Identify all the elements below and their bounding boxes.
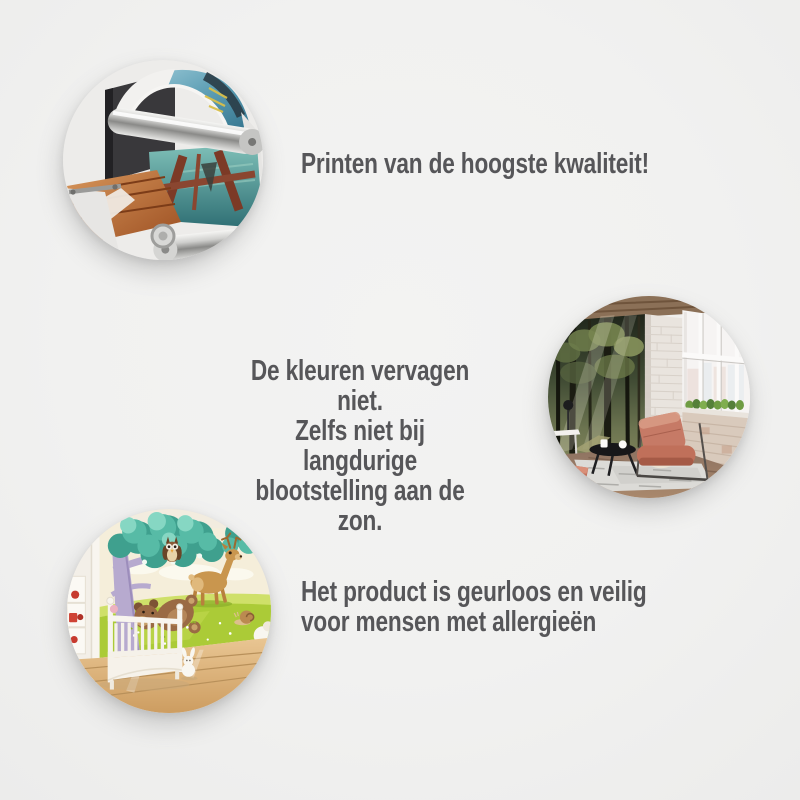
red-wall-toy xyxy=(71,591,79,599)
printer-photo-circle xyxy=(63,60,263,260)
red-wall-toy xyxy=(71,543,77,549)
product-features-graphic: Printen van de hoogste kwaliteit! xyxy=(0,0,800,800)
red-wall-toy xyxy=(77,614,83,620)
nursery-mural-illustration xyxy=(67,509,271,713)
forest-mural-interior-illustration xyxy=(548,296,750,498)
nursery-photo-circle xyxy=(67,509,271,713)
printer-knob xyxy=(152,225,174,247)
pink-toy xyxy=(110,605,118,613)
caption-print-quality: Printen van de hoogste kwaliteit! xyxy=(301,149,675,179)
white-mug xyxy=(601,439,608,447)
caption-line: De kleuren vervagen niet. xyxy=(235,356,485,416)
left-wall-with-shelf xyxy=(67,509,100,713)
window xyxy=(682,310,750,418)
forest-wall-mural xyxy=(548,314,645,457)
caption-line: Printen van de hoogste kwaliteit! xyxy=(301,149,675,179)
red-wall-toy xyxy=(69,613,77,622)
caption-line: voor mensen met allergieën xyxy=(301,607,675,637)
caption-color-fastness: De kleuren vervagen niet. Zelfs niet bij… xyxy=(235,356,485,536)
caption-odorless-safe: Het product is geurloos en veilig voor m… xyxy=(301,577,675,637)
interior-photo-circle xyxy=(548,296,750,498)
caption-line: Zelfs niet bij langdurige xyxy=(235,416,485,476)
red-wall-toy xyxy=(71,636,78,643)
printer-closeup-illustration xyxy=(63,60,263,260)
caption-line: Het product is geurloos en veilig xyxy=(301,577,675,607)
caption-line: blootstelling aan de zon. xyxy=(235,476,485,536)
white-cup xyxy=(619,440,627,448)
